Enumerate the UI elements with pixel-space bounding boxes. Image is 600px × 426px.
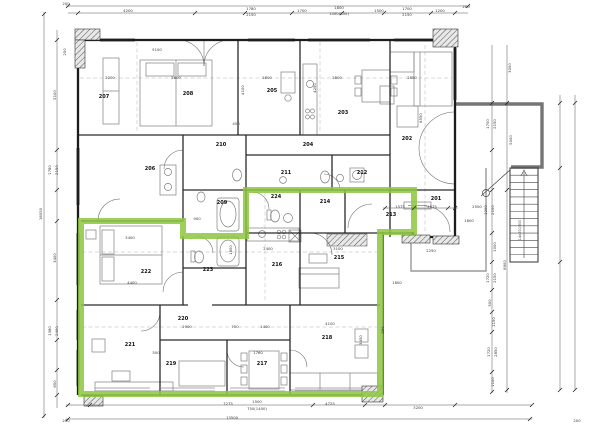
dim-label: 3000 bbox=[507, 63, 512, 73]
dim-label: 4400 bbox=[127, 280, 137, 285]
dim-label: 200 bbox=[62, 418, 70, 423]
dim-label: 290 bbox=[380, 326, 385, 334]
dim-label: 13500 bbox=[226, 415, 239, 420]
dim-label: 2800 bbox=[171, 75, 181, 80]
dim-label: 750 bbox=[231, 324, 239, 329]
room-label-201: 201 bbox=[431, 196, 442, 202]
room-label-224: 224 bbox=[271, 194, 282, 200]
dim-label: 2400 bbox=[54, 326, 59, 336]
dim-label: 750(1400) bbox=[247, 406, 267, 411]
dim-label: 2850 bbox=[493, 347, 498, 357]
dim-label: 1380 bbox=[47, 326, 52, 336]
dim-label: 1500 bbox=[252, 399, 262, 404]
dim-label: 6550 bbox=[418, 113, 423, 123]
room-label-210: 210 bbox=[216, 142, 227, 148]
dim-label: 2850 bbox=[407, 75, 417, 80]
room-label-202: 202 bbox=[402, 136, 413, 142]
dim-label: 650 bbox=[52, 380, 57, 388]
dim-label: 3450 bbox=[358, 335, 363, 345]
dim-label: 1150 bbox=[491, 317, 496, 327]
dim-label: 5100 bbox=[152, 47, 162, 52]
dim-label: 2150 bbox=[246, 12, 256, 17]
dim-label: 1200 bbox=[483, 205, 488, 215]
dim-label: 2150 bbox=[490, 205, 495, 215]
room-label-207: 207 bbox=[99, 94, 110, 100]
dim-label: 2800 bbox=[332, 75, 342, 80]
dim-label: 2900 bbox=[182, 324, 192, 329]
dim-label: 1700 bbox=[297, 8, 307, 13]
dim-label: 2800 bbox=[262, 75, 272, 80]
dim-label: 5000 bbox=[508, 135, 513, 145]
dim-label: 250 bbox=[62, 48, 67, 56]
dim-label: 1800 bbox=[228, 245, 233, 255]
dim-label: 8900 bbox=[502, 260, 507, 270]
upper-terrace-outline bbox=[455, 104, 542, 167]
dim-label: 2150 bbox=[402, 12, 412, 17]
room-label-215: 215 bbox=[334, 255, 345, 261]
room-label-220: 220 bbox=[178, 316, 189, 322]
room-label-205: 205 bbox=[267, 88, 278, 94]
dim-label: 1700 bbox=[402, 6, 412, 11]
room-label-222: 222 bbox=[141, 269, 152, 275]
dim-label: 1800 bbox=[464, 218, 474, 223]
room-label-208: 208 bbox=[183, 91, 194, 97]
dim-label: 450 bbox=[232, 121, 240, 126]
dim-label: 3100 bbox=[333, 246, 343, 251]
dim-label: 3400 bbox=[125, 235, 135, 240]
dim-label: 4200 bbox=[123, 8, 133, 13]
dim-label: 1700 bbox=[485, 119, 490, 129]
room-label-214: 214 bbox=[320, 199, 331, 205]
dim-label: 3400 bbox=[52, 253, 57, 263]
floor-plan-drawing: 2012022032042052062072082092102112122132… bbox=[0, 0, 600, 426]
dim-label: 1720 bbox=[486, 347, 491, 357]
dim-label: 4725 bbox=[325, 401, 335, 406]
highlighted-apartment-outline bbox=[81, 190, 414, 394]
stair-note: 14x200/300 bbox=[518, 220, 522, 240]
dim-label: 1800 bbox=[334, 5, 344, 10]
dim-label: 1575 bbox=[395, 204, 405, 209]
room-label-223: 223 bbox=[203, 267, 214, 273]
dim-label: 1500 bbox=[374, 8, 384, 13]
dim-label: 2150 bbox=[492, 119, 497, 129]
room-label-218: 218 bbox=[322, 335, 333, 341]
dim-label: 16050 bbox=[38, 207, 43, 220]
dim-label: 1200 bbox=[435, 8, 445, 13]
room-label-219: 219 bbox=[166, 361, 177, 367]
dim-label: 200 bbox=[62, 1, 70, 6]
dim-label: 2500 bbox=[472, 204, 482, 209]
room-label-213: 213 bbox=[386, 212, 397, 218]
dim-label: 1400 bbox=[260, 324, 270, 329]
dim-label: 2200 bbox=[105, 75, 115, 80]
room-label-204: 204 bbox=[303, 142, 314, 148]
dimension-lines bbox=[42, 4, 577, 421]
dim-label: 500 bbox=[487, 299, 492, 307]
dim-label: 1800 bbox=[392, 280, 402, 285]
dim-label: 4100 bbox=[240, 85, 245, 95]
dim-label: 1720 bbox=[485, 273, 490, 283]
dim-label: 500 bbox=[152, 350, 160, 355]
floor-plan-page: 2012022032042052062072082092102112122132… bbox=[0, 0, 600, 426]
dim-label: 4100 bbox=[325, 321, 335, 326]
dim-label: 200 bbox=[462, 4, 470, 9]
dim-label: 1760 bbox=[253, 350, 263, 355]
dim-label: 5100 bbox=[52, 90, 57, 100]
room-label-216: 216 bbox=[272, 262, 283, 268]
room-label-206: 206 bbox=[145, 166, 156, 172]
dim-label: 2400 bbox=[263, 246, 273, 251]
dim-label: 1100 bbox=[490, 377, 495, 387]
room-label-221: 221 bbox=[125, 342, 136, 348]
dim-label: 1575 bbox=[427, 204, 437, 209]
dim-label: 3200 bbox=[413, 405, 423, 410]
dim-label: 1780 bbox=[246, 6, 256, 11]
dim-label: 1500(850) bbox=[329, 11, 349, 16]
room-label-212: 212 bbox=[357, 170, 368, 176]
dim-label: 2150 bbox=[492, 273, 497, 283]
room-label-217: 217 bbox=[257, 361, 268, 367]
dim-label: 2150 bbox=[54, 165, 59, 175]
room-label-203: 203 bbox=[338, 110, 349, 116]
dim-label: 900 bbox=[193, 216, 201, 221]
dim-label: 7275 bbox=[223, 401, 233, 406]
dim-label: 1780 bbox=[47, 165, 52, 175]
dim-label: 4250 bbox=[312, 83, 317, 93]
dim-label: 200 bbox=[573, 418, 581, 423]
windows-bottom bbox=[95, 388, 370, 391]
room-label-211: 211 bbox=[281, 170, 292, 176]
dim-label: 2250 bbox=[426, 248, 436, 253]
room-label-209: 209 bbox=[217, 200, 228, 206]
dim-label: 1000 bbox=[492, 242, 497, 252]
